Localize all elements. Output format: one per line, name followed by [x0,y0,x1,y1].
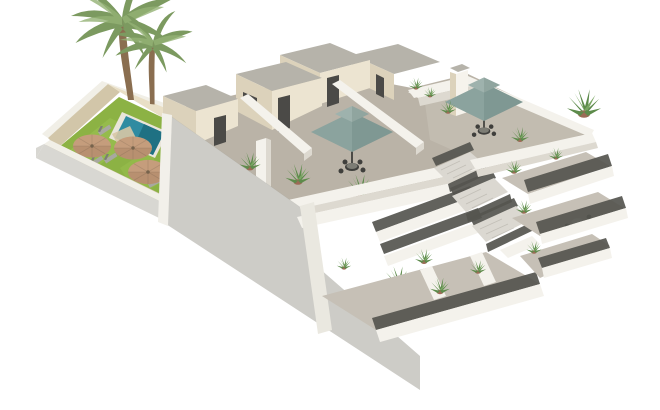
banana-plant [567,89,601,118]
architectural-render [0,0,660,410]
tower-door [214,115,226,146]
potted-plant [337,258,351,270]
tower-door [376,74,384,98]
render-canvas [0,0,660,410]
tower-door [327,75,339,107]
garden-parasol [114,137,152,160]
